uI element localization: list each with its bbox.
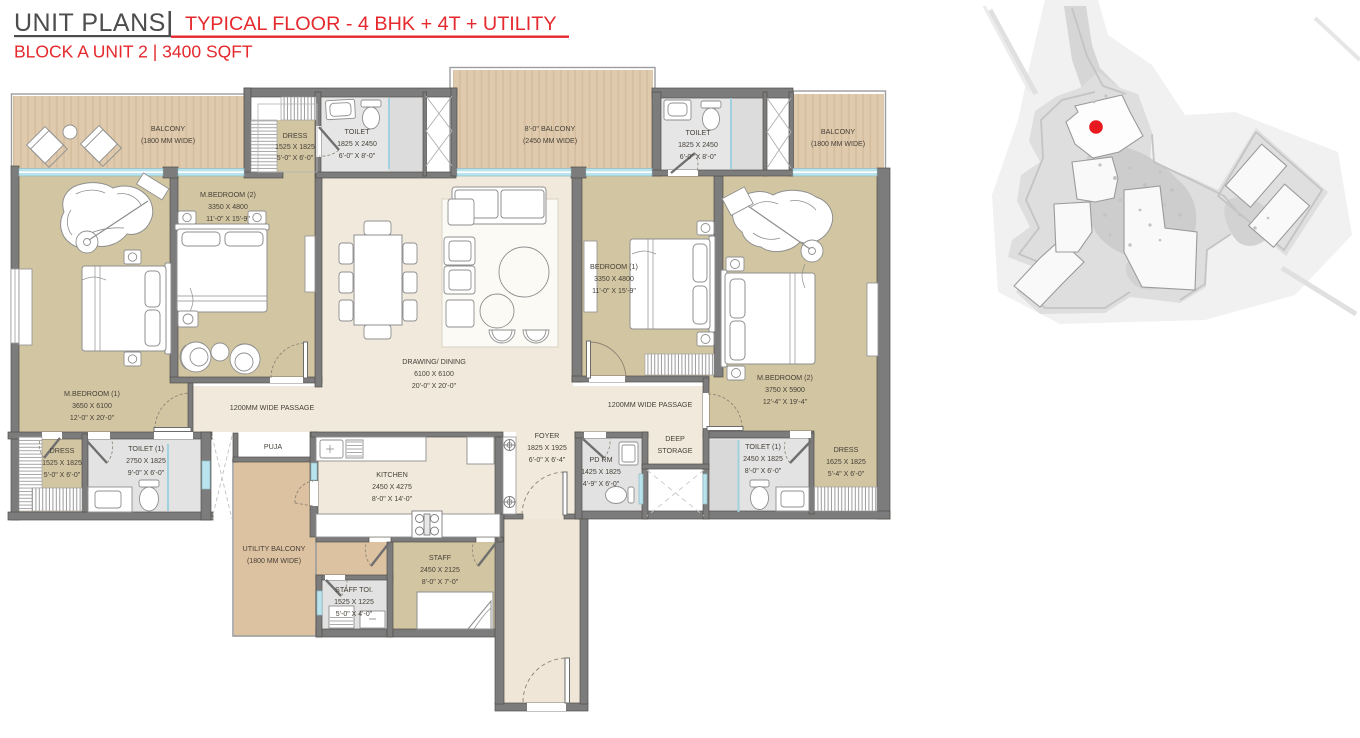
svg-text:3350 X 4800: 3350 X 4800	[208, 204, 248, 211]
svg-text:STAFF TOI.: STAFF TOI.	[335, 585, 373, 594]
svg-text:5'-0" X 6'-0": 5'-0" X 6'-0"	[277, 155, 314, 162]
svg-text:PD RM: PD RM	[589, 455, 612, 464]
svg-text:DRESS: DRESS	[283, 131, 308, 140]
svg-text:DRESS: DRESS	[50, 446, 75, 455]
svg-text:8'-0" X 7'-0": 8'-0" X 7'-0"	[422, 579, 459, 586]
svg-text:(1800 MM WIDE): (1800 MM WIDE)	[247, 558, 301, 565]
svg-text:(1800 MM WIDE): (1800 MM WIDE)	[141, 138, 195, 145]
svg-text:2450 X 1825: 2450 X 1825	[743, 456, 783, 463]
svg-text:BALCONY: BALCONY	[151, 124, 186, 133]
svg-text:1200MM WIDE PASSAGE: 1200MM WIDE PASSAGE	[608, 400, 693, 409]
svg-text:5'-0" X 6'-0": 5'-0" X 6'-0"	[44, 472, 81, 479]
svg-text:1525 X 1225: 1525 X 1225	[334, 599, 374, 606]
svg-text:UTILITY BALCONY: UTILITY BALCONY	[243, 544, 306, 553]
svg-text:TOILET (1): TOILET (1)	[128, 444, 164, 453]
svg-text:2450 X 2125: 2450 X 2125	[420, 567, 460, 574]
svg-text:DRAWING/ DINING: DRAWING/ DINING	[402, 357, 466, 366]
svg-text:STAFF: STAFF	[429, 553, 452, 562]
svg-text:1525 X 1825: 1525 X 1825	[42, 460, 82, 467]
svg-text:TYPICAL FLOOR - 4 BHK + 4T + U: TYPICAL FLOOR - 4 BHK + 4T + UTILITY	[185, 13, 557, 35]
svg-text:1625 X 1825: 1625 X 1825	[826, 459, 866, 466]
svg-text:TOILET (1): TOILET (1)	[745, 442, 781, 451]
svg-text:12'-0" X 20'-0": 12'-0" X 20'-0"	[70, 415, 115, 422]
svg-text:1825 X 2450: 1825 X 2450	[337, 141, 377, 148]
svg-text:3650 X 6100: 3650 X 6100	[72, 403, 112, 410]
svg-text:KITCHEN: KITCHEN	[376, 470, 408, 479]
svg-text:FOYER: FOYER	[535, 431, 560, 440]
svg-text:9'-0" X 6'-0": 9'-0" X 6'-0"	[128, 470, 165, 477]
svg-text:5'-4" X 6'-0": 5'-4" X 6'-0"	[828, 471, 865, 478]
svg-text:11'-0" X 15'-9": 11'-0" X 15'-9"	[592, 288, 636, 295]
svg-text:BALCONY: BALCONY	[821, 127, 856, 136]
svg-text:TOILET: TOILET	[685, 128, 711, 137]
svg-text:6100 X 6100: 6100 X 6100	[414, 371, 454, 378]
svg-text:8'-0" BALCONY: 8'-0" BALCONY	[525, 124, 576, 133]
svg-text:11'-0" X 15'-9": 11'-0" X 15'-9"	[206, 216, 250, 223]
svg-text:3350 X 4800: 3350 X 4800	[594, 276, 634, 283]
svg-text:6'-0" X 8'-0": 6'-0" X 8'-0"	[339, 153, 376, 160]
svg-text:M.BEDROOM (1): M.BEDROOM (1)	[64, 389, 120, 398]
svg-text:BEDROOM (1): BEDROOM (1)	[590, 262, 638, 271]
svg-text:M.BEDROOM (2): M.BEDROOM (2)	[757, 373, 813, 382]
svg-text:M.BEDROOM (2): M.BEDROOM (2)	[200, 190, 256, 199]
svg-text:6'-0" X 8'-0": 6'-0" X 8'-0"	[680, 154, 717, 161]
svg-text:(2450 MM WIDE): (2450 MM WIDE)	[523, 138, 577, 145]
svg-text:1825 X 2450: 1825 X 2450	[678, 142, 718, 149]
svg-text:STORAGE: STORAGE	[657, 446, 692, 455]
svg-text:BLOCK A UNIT 2 | 3400 SQFT: BLOCK A UNIT 2 | 3400 SQFT	[14, 42, 253, 62]
svg-text:DRESS: DRESS	[834, 445, 859, 454]
svg-text:4'-9" X 6'-0": 4'-9" X 6'-0"	[583, 481, 620, 488]
svg-text:TOILET: TOILET	[344, 127, 370, 136]
svg-text:UNIT PLANS: UNIT PLANS	[14, 9, 166, 37]
svg-text:8'-0" X 6'-0": 8'-0" X 6'-0"	[745, 468, 782, 475]
svg-text:12'-4" X 19'-4": 12'-4" X 19'-4"	[763, 399, 808, 406]
svg-text:2750 X 1825: 2750 X 1825	[126, 458, 166, 465]
svg-text:8'-0" X 14'-0": 8'-0" X 14'-0"	[372, 496, 413, 503]
svg-text:2450 X 4275: 2450 X 4275	[372, 484, 412, 491]
svg-text:1525 X 1825: 1525 X 1825	[275, 144, 315, 151]
svg-text:3750 X 5900: 3750 X 5900	[765, 387, 805, 394]
svg-text:PUJA: PUJA	[264, 442, 283, 451]
svg-text:DEEP: DEEP	[665, 434, 685, 443]
svg-text:(1800 MM WIDE): (1800 MM WIDE)	[811, 141, 865, 148]
svg-text:1425 X 1825: 1425 X 1825	[581, 469, 621, 476]
svg-text:6'-0" X 6'-4": 6'-0" X 6'-4"	[529, 457, 566, 464]
svg-text:20'-0" X 20'-0": 20'-0" X 20'-0"	[412, 383, 457, 390]
svg-text:1200MM WIDE PASSAGE: 1200MM WIDE PASSAGE	[230, 403, 315, 412]
svg-text:1825 X 1925: 1825 X 1925	[527, 445, 567, 452]
svg-text:5'-0" X 4'-0": 5'-0" X 4'-0"	[336, 611, 373, 618]
